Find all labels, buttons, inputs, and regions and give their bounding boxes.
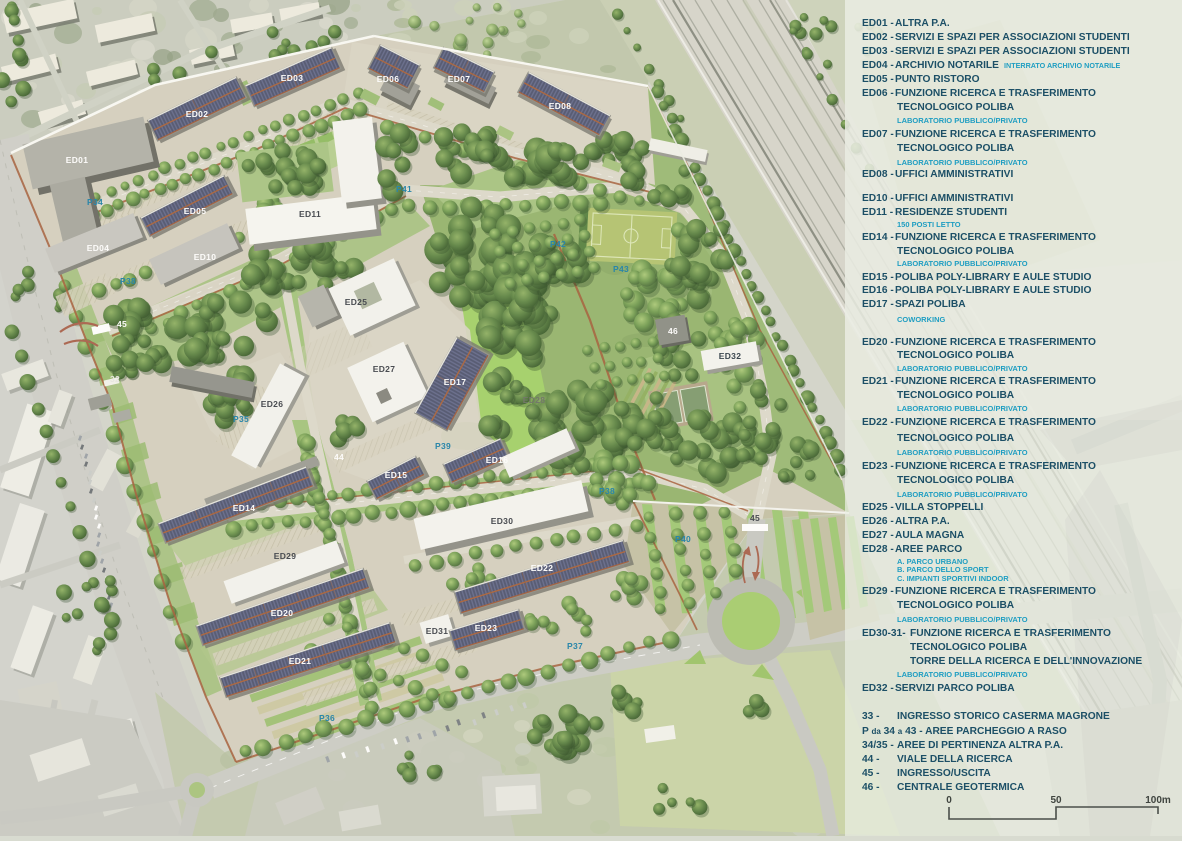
svg-text:ED26 -: ED26 - bbox=[862, 516, 894, 527]
svg-text:AREE DI PERTINENZA ALTRA P.A.: AREE DI PERTINENZA ALTRA P.A. bbox=[897, 740, 1063, 751]
svg-text:ED04 -: ED04 - bbox=[862, 60, 894, 71]
svg-text:100m: 100m bbox=[1145, 795, 1171, 806]
svg-text:ED20 -: ED20 - bbox=[862, 337, 894, 348]
svg-text:ED28 -: ED28 - bbox=[862, 544, 894, 555]
svg-text:FUNZIONE RICERCA E TRASFERIMEN: FUNZIONE RICERCA E TRASFERIMENTO bbox=[895, 232, 1096, 243]
svg-text:ED03 -: ED03 - bbox=[862, 46, 894, 57]
svg-text:C. IMPIANTI SPORTIVI INDOOR: C. IMPIANTI SPORTIVI INDOOR bbox=[897, 574, 1009, 583]
svg-text:ARCHIVIO NOTARILE: ARCHIVIO NOTARILE bbox=[895, 60, 999, 71]
svg-text:FUNZIONE RICERCA E TRASFERIMEN: FUNZIONE RICERCA E TRASFERIMENTO bbox=[910, 628, 1111, 639]
svg-text:POLIBA POLY-LIBRARY E AULE STU: POLIBA POLY-LIBRARY E AULE STUDIO bbox=[895, 285, 1091, 296]
svg-text:FUNZIONE RICERCA E TRASFERIMEN: FUNZIONE RICERCA E TRASFERIMENTO bbox=[895, 337, 1096, 348]
svg-text:TECNOLOGICO POLIBA: TECNOLOGICO POLIBA bbox=[897, 350, 1015, 361]
svg-text:INGRESSO/USCITA: INGRESSO/USCITA bbox=[897, 768, 991, 779]
svg-text:TECNOLOGICO POLIBA: TECNOLOGICO POLIBA bbox=[897, 246, 1015, 257]
svg-text:FUNZIONE RICERCA E TRASFERIMEN: FUNZIONE RICERCA E TRASFERIMENTO bbox=[895, 586, 1096, 597]
svg-text:LABORATORIO PUBBLICO/PRIVATO: LABORATORIO PUBBLICO/PRIVATO bbox=[897, 404, 1028, 413]
svg-text:VILLA STOPPELLI: VILLA STOPPELLI bbox=[895, 502, 983, 513]
svg-text:SERVIZI PARCO POLIBA: SERVIZI PARCO POLIBA bbox=[895, 683, 1015, 694]
svg-text:POLIBA POLY-LIBRARY E AULE STU: POLIBA POLY-LIBRARY E AULE STUDIO bbox=[895, 272, 1091, 283]
svg-text:VIALE DELLA RICERCA: VIALE DELLA RICERCA bbox=[897, 754, 1013, 765]
svg-text:FUNZIONE RICERCA E TRASFERIMEN: FUNZIONE RICERCA E TRASFERIMENTO bbox=[895, 461, 1096, 472]
svg-text:LABORATORIO PUBBLICO/PRIVATO: LABORATORIO PUBBLICO/PRIVATO bbox=[897, 116, 1028, 125]
svg-text:AULA MAGNA: AULA MAGNA bbox=[895, 530, 965, 541]
svg-text:ED11 -: ED11 - bbox=[862, 207, 893, 218]
svg-text:LABORATORIO PUBBLICO/PRIVATO: LABORATORIO PUBBLICO/PRIVATO bbox=[897, 364, 1028, 373]
svg-text:TECNOLOGICO POLIBA: TECNOLOGICO POLIBA bbox=[910, 642, 1028, 653]
svg-text:ED17 -: ED17 - bbox=[862, 299, 894, 310]
svg-text:TECNOLOGICO POLIBA: TECNOLOGICO POLIBA bbox=[897, 143, 1015, 154]
svg-text:0: 0 bbox=[946, 795, 952, 806]
svg-text:LABORATORIO PUBBLICO/PRIVATO: LABORATORIO PUBBLICO/PRIVATO bbox=[897, 490, 1028, 499]
svg-text:ED02 -: ED02 - bbox=[862, 32, 894, 43]
svg-text:ED21 -: ED21 - bbox=[862, 376, 894, 387]
svg-text:ED29 -: ED29 - bbox=[862, 586, 894, 597]
svg-text:LABORATORIO PUBBLICO/PRIVATO: LABORATORIO PUBBLICO/PRIVATO bbox=[897, 158, 1028, 167]
svg-text:UFFICI AMMINISTRATIVI: UFFICI AMMINISTRATIVI bbox=[895, 193, 1013, 204]
svg-text:FUNZIONE RICERCA E TRASFERIMEN: FUNZIONE RICERCA E TRASFERIMENTO bbox=[895, 88, 1096, 99]
svg-text:ED14 -: ED14 - bbox=[862, 232, 894, 243]
svg-text:FUNZIONE RICERCA E TRASFERIMEN: FUNZIONE RICERCA E TRASFERIMENTO bbox=[895, 129, 1096, 140]
svg-text:TORRE DELLA RICERCA E DELL'INN: TORRE DELLA RICERCA E DELL'INNOVAZIONE bbox=[910, 656, 1142, 667]
svg-text:ED30-31-: ED30-31- bbox=[862, 628, 906, 639]
svg-text:TECNOLOGICO POLIBA: TECNOLOGICO POLIBA bbox=[897, 390, 1015, 401]
svg-text:33 -: 33 - bbox=[862, 711, 880, 722]
svg-text:ED27 -: ED27 - bbox=[862, 530, 894, 541]
svg-text:UFFICI AMMINISTRATIVI: UFFICI AMMINISTRATIVI bbox=[895, 169, 1013, 180]
svg-text:ED01 -: ED01 - bbox=[862, 18, 894, 29]
svg-text:LABORATORIO PUBBLICO/PRIVATO: LABORATORIO PUBBLICO/PRIVATO bbox=[897, 259, 1028, 268]
svg-text:ED23 -: ED23 - bbox=[862, 461, 894, 472]
svg-text:44 -: 44 - bbox=[862, 754, 880, 765]
svg-text:AREE PARCO: AREE PARCO bbox=[895, 544, 962, 555]
svg-text:ED25 -: ED25 - bbox=[862, 502, 894, 513]
svg-text:SERVIZI E SPAZI PER ASSOCIAZIO: SERVIZI E SPAZI PER ASSOCIAZIONI STUDENT… bbox=[895, 46, 1130, 57]
svg-text:FUNZIONE RICERCA E TRASFERIMEN: FUNZIONE RICERCA E TRASFERIMENTO bbox=[895, 417, 1096, 428]
svg-text:COWORKING: COWORKING bbox=[897, 315, 945, 324]
svg-text:SERVIZI E SPAZI PER ASSOCIAZIO: SERVIZI E SPAZI PER ASSOCIAZIONI STUDENT… bbox=[895, 32, 1130, 43]
svg-text:150 POSTI LETTO: 150 POSTI LETTO bbox=[897, 220, 961, 229]
svg-text:INGRESSO STORICO CASERMA MAGRO: INGRESSO STORICO CASERMA MAGRONE bbox=[897, 711, 1110, 722]
svg-text:INTERRATO ARCHIVIO NOTARILE: INTERRATO ARCHIVIO NOTARILE bbox=[1004, 61, 1121, 70]
svg-text:46 -: 46 - bbox=[862, 782, 880, 793]
svg-text:CENTRALE GEOTERMICA: CENTRALE GEOTERMICA bbox=[897, 782, 1025, 793]
svg-text:PUNTO RISTORO: PUNTO RISTORO bbox=[895, 74, 980, 85]
svg-text:TECNOLOGICO POLIBA: TECNOLOGICO POLIBA bbox=[897, 433, 1015, 444]
svg-text:LABORATORIO PUBBLICO/PRIVATO: LABORATORIO PUBBLICO/PRIVATO bbox=[897, 448, 1028, 457]
svg-text:ED22 -: ED22 - bbox=[862, 417, 894, 428]
svg-text:45 -: 45 - bbox=[862, 768, 880, 779]
svg-text:ED08 -: ED08 - bbox=[862, 169, 894, 180]
svg-text:ALTRA P.A.: ALTRA P.A. bbox=[895, 516, 950, 527]
svg-text:P da 34 a 43 - AREE PARCHEGGIO: P da 34 a 43 - AREE PARCHEGGIO A RASO bbox=[862, 726, 1067, 737]
svg-text:34/35 -: 34/35 - bbox=[862, 740, 894, 751]
svg-text:ED32 -: ED32 - bbox=[862, 683, 894, 694]
svg-text:ED16 -: ED16 - bbox=[862, 285, 894, 296]
svg-text:TECNOLOGICO POLIBA: TECNOLOGICO POLIBA bbox=[897, 600, 1015, 611]
svg-text:ED15 -: ED15 - bbox=[862, 272, 894, 283]
svg-text:FUNZIONE RICERCA E TRASFERIMEN: FUNZIONE RICERCA E TRASFERIMENTO bbox=[895, 376, 1096, 387]
svg-text:ALTRA P.A.: ALTRA P.A. bbox=[895, 18, 950, 29]
svg-text:50: 50 bbox=[1050, 795, 1062, 806]
svg-text:TECNOLOGICO POLIBA: TECNOLOGICO POLIBA bbox=[897, 475, 1015, 486]
svg-text:B. PARCO DELLO SPORT: B. PARCO DELLO SPORT bbox=[897, 565, 989, 574]
svg-text:LABORATORIO PUBBLICO/PRIVATO: LABORATORIO PUBBLICO/PRIVATO bbox=[897, 670, 1028, 679]
svg-text:SPAZI POLIBA: SPAZI POLIBA bbox=[895, 299, 966, 310]
svg-text:TECNOLOGICO POLIBA: TECNOLOGICO POLIBA bbox=[897, 102, 1015, 113]
svg-text:ED07 -: ED07 - bbox=[862, 129, 894, 140]
svg-text:LABORATORIO PUBBLICO/PRIVATO: LABORATORIO PUBBLICO/PRIVATO bbox=[897, 615, 1028, 624]
svg-text:ED05 -: ED05 - bbox=[862, 74, 894, 85]
svg-text:RESIDENZE STUDENTI: RESIDENZE STUDENTI bbox=[895, 207, 1007, 218]
svg-text:ED10 -: ED10 - bbox=[862, 193, 894, 204]
svg-text:ED06 -: ED06 - bbox=[862, 88, 894, 99]
